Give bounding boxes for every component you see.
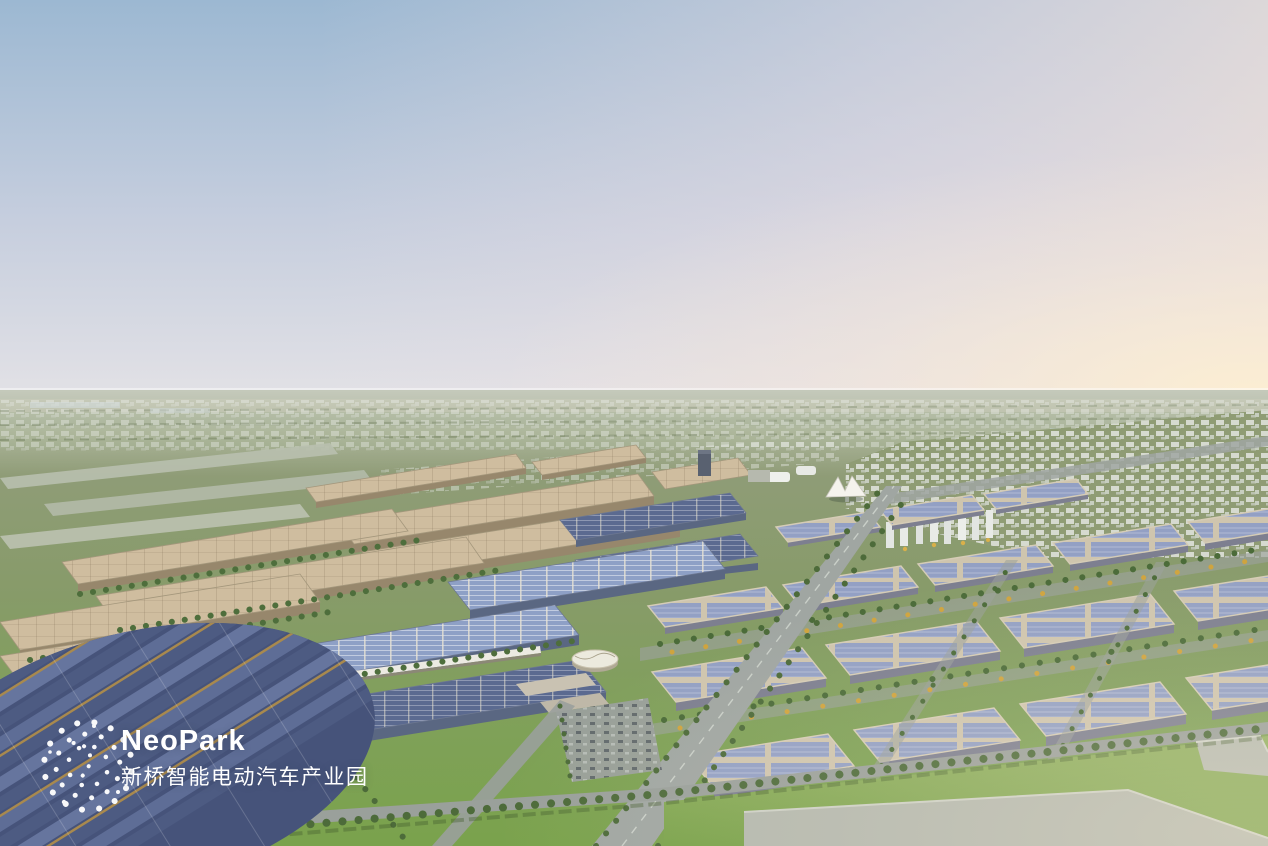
aerial-scene (0, 0, 1268, 846)
sunset-tint (0, 390, 1268, 846)
sky (0, 0, 1268, 402)
neopark-aerial-render: NeoPark 新桥智能电动汽车产业园 (0, 0, 1268, 846)
